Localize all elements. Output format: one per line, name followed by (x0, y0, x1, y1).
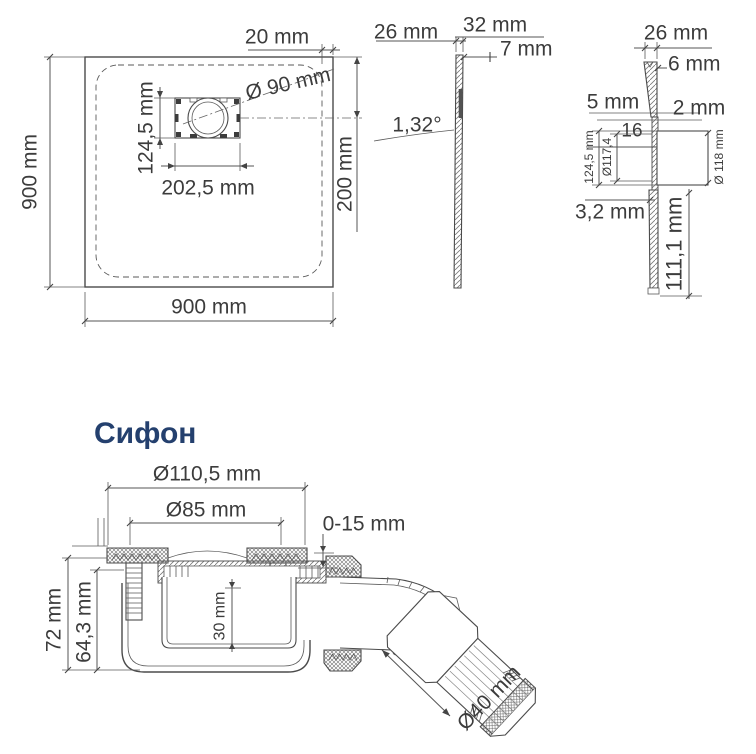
dim-siphon-cup-depth: 30 mm (212, 592, 229, 641)
technical-drawing-page: 900 mm 900 mm 20 mm Ø 90 mm 124,5 mm 202… (0, 0, 756, 754)
dim-siphon-total-height: 72 mm (43, 588, 66, 652)
drain-plug-section (459, 89, 463, 118)
detail-section-view: 26 mm 6 mm 5 mm 2 mm 16 124,5 mm Ø117,4 … (575, 22, 726, 300)
dim-detail-hole-diameter: Ø 118 mm (712, 129, 726, 184)
siphon-section: Сифон (43, 417, 551, 747)
dim-siphon-body-height: 64,3 mm (73, 581, 96, 663)
dim-plan-bottom: 900 mm (171, 296, 247, 319)
dim-detail-recess-height: 124,5 mm (582, 130, 596, 183)
dim-plan-left: 900 mm (19, 134, 42, 210)
dim-siphon-adjust-range: 0-15 mm (323, 513, 406, 536)
dim-detail-gap-right: 2 mm (673, 97, 726, 120)
technical-drawing-canvas: 900 mm 900 mm 20 mm Ø 90 mm 124,5 mm 202… (0, 0, 756, 754)
drain-recess-box (657, 131, 708, 185)
dim-detail-gap-left: 5 mm (587, 91, 640, 114)
siphon-heading: Сифон (94, 417, 196, 450)
dim-side-edge-top: 7 mm (500, 38, 553, 61)
dim-siphon-flange-diameter: Ø110,5 mm (153, 463, 261, 486)
dim-detail-recess-diameter: Ø117,4 (600, 137, 614, 176)
dim-plan-top-offset: 20 mm (245, 26, 309, 49)
dim-detail-bottom-thickness: 3,2 mm (575, 201, 645, 224)
dim-drain-height: 124,5 mm (135, 81, 158, 174)
dim-detail-edge-top: 6 mm (668, 53, 721, 76)
dim-side-rim: 26 mm (374, 21, 438, 44)
siphon-union-nut-bottom (324, 650, 361, 671)
dim-side-slope: 1,32° (392, 114, 441, 137)
drain-assembly (175, 98, 240, 138)
dim-plan-right-offset: 200 mm (334, 136, 357, 212)
detail-bottom-wall (649, 190, 658, 288)
dim-side-height: 32 mm (463, 14, 527, 37)
dim-detail-total-depth: 111,1 mm (662, 197, 687, 292)
dim-siphon-grate-diameter: Ø85 mm (166, 499, 247, 522)
dim-detail-rim: 26 mm (644, 22, 708, 45)
dim-drain-width: 202,5 mm (161, 177, 254, 200)
plan-view: 900 mm 900 mm 20 mm Ø 90 mm 124,5 mm 202… (19, 26, 363, 328)
side-section-view: 26 mm 32 mm 7 mm 1,32° (374, 14, 553, 289)
dim-detail-step: 16 (621, 121, 642, 142)
drain-circle-outer (188, 98, 228, 138)
